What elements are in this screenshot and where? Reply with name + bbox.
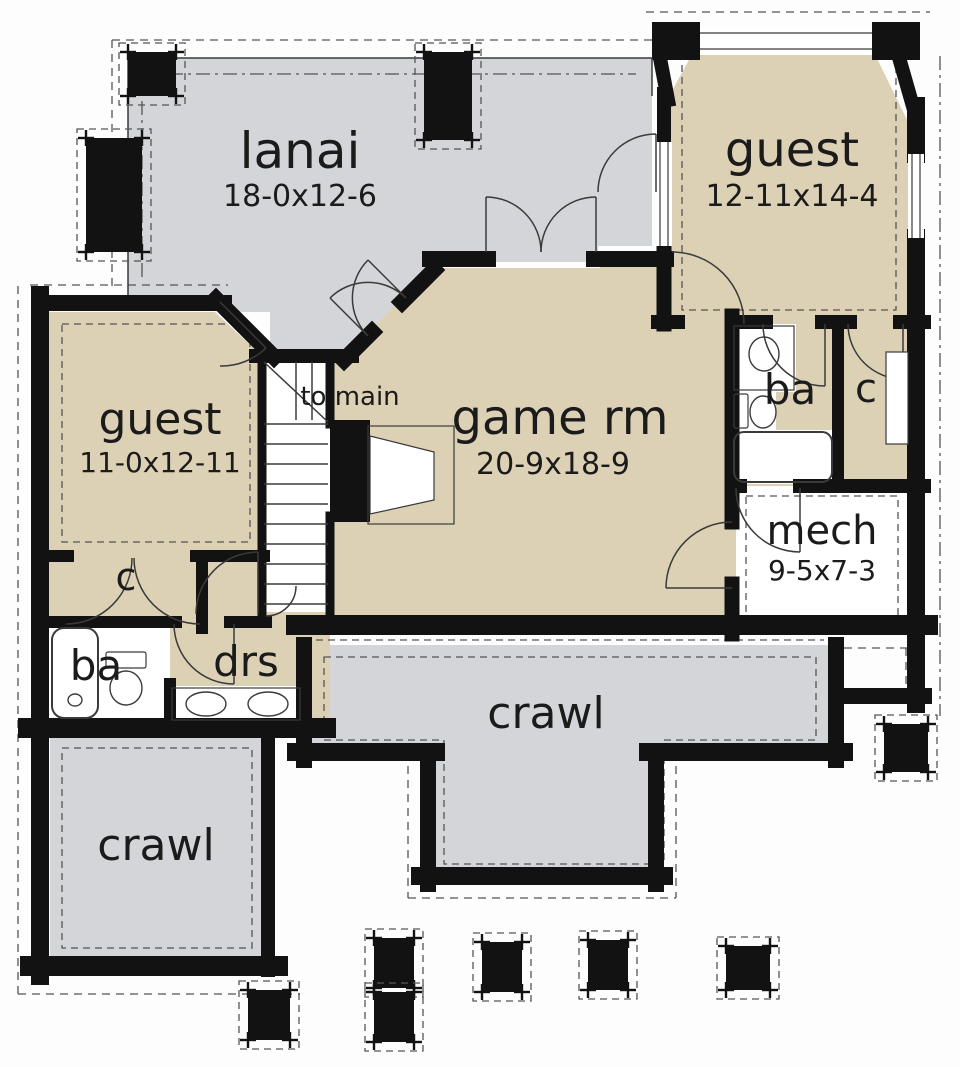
room-label-guest-upper: guest: [725, 122, 859, 178]
floor-plan-page: lanai 18-0x12-6 guest 12-11x14-4 guest 1…: [0, 0, 960, 1067]
room-label-closet-left: c: [116, 555, 137, 599]
room-label-dressing: drs: [213, 637, 279, 686]
structural-post: [588, 940, 628, 990]
structural-post: [482, 942, 522, 992]
fireplace-mass: [330, 420, 370, 522]
floor-plan: lanai 18-0x12-6 guest 12-11x14-4 guest 1…: [0, 0, 960, 1067]
structural-post: [248, 990, 290, 1040]
window: [656, 142, 672, 246]
structural-post: [726, 946, 770, 990]
structural-post: [424, 52, 472, 140]
room-dims-mech: 9-5x7-3: [768, 554, 876, 587]
structural-post: [86, 138, 142, 252]
room-label-crawl-left: crawl: [97, 820, 214, 871]
window: [700, 27, 872, 55]
dressing-vanity-zone: [170, 686, 302, 722]
room-label-closet-right: c: [855, 366, 877, 412]
room-label-stair-landing: to main: [300, 382, 399, 412]
bay-corner-left: [652, 22, 700, 60]
structural-post: [374, 938, 414, 988]
bay-corner-right: [872, 22, 920, 60]
structural-post: [374, 992, 414, 1042]
closet-shelf-right: [886, 352, 908, 444]
room-label-crawl-center: crawl: [487, 688, 604, 739]
room-label-lanai: lanai: [240, 122, 361, 180]
room-label-game-room: game rm: [451, 390, 668, 446]
window: [908, 154, 924, 238]
dashed-outline: [844, 648, 910, 690]
room-label-bath-left: ba: [70, 641, 122, 690]
bath-right-tub-zone: [732, 430, 834, 484]
structural-post: [128, 52, 176, 96]
room-label-bath-right: ba: [764, 365, 816, 414]
room-dims-game-room: 20-9x18-9: [476, 447, 630, 482]
room-dims-lanai: 18-0x12-6: [223, 179, 377, 214]
room-dims-guest-lower: 11-0x12-11: [79, 446, 240, 479]
structural-post: [884, 724, 928, 772]
room-label-mech: mech: [767, 508, 878, 554]
room-label-guest-lower: guest: [98, 394, 221, 445]
room-dims-guest-upper: 12-11x14-4: [705, 179, 878, 214]
